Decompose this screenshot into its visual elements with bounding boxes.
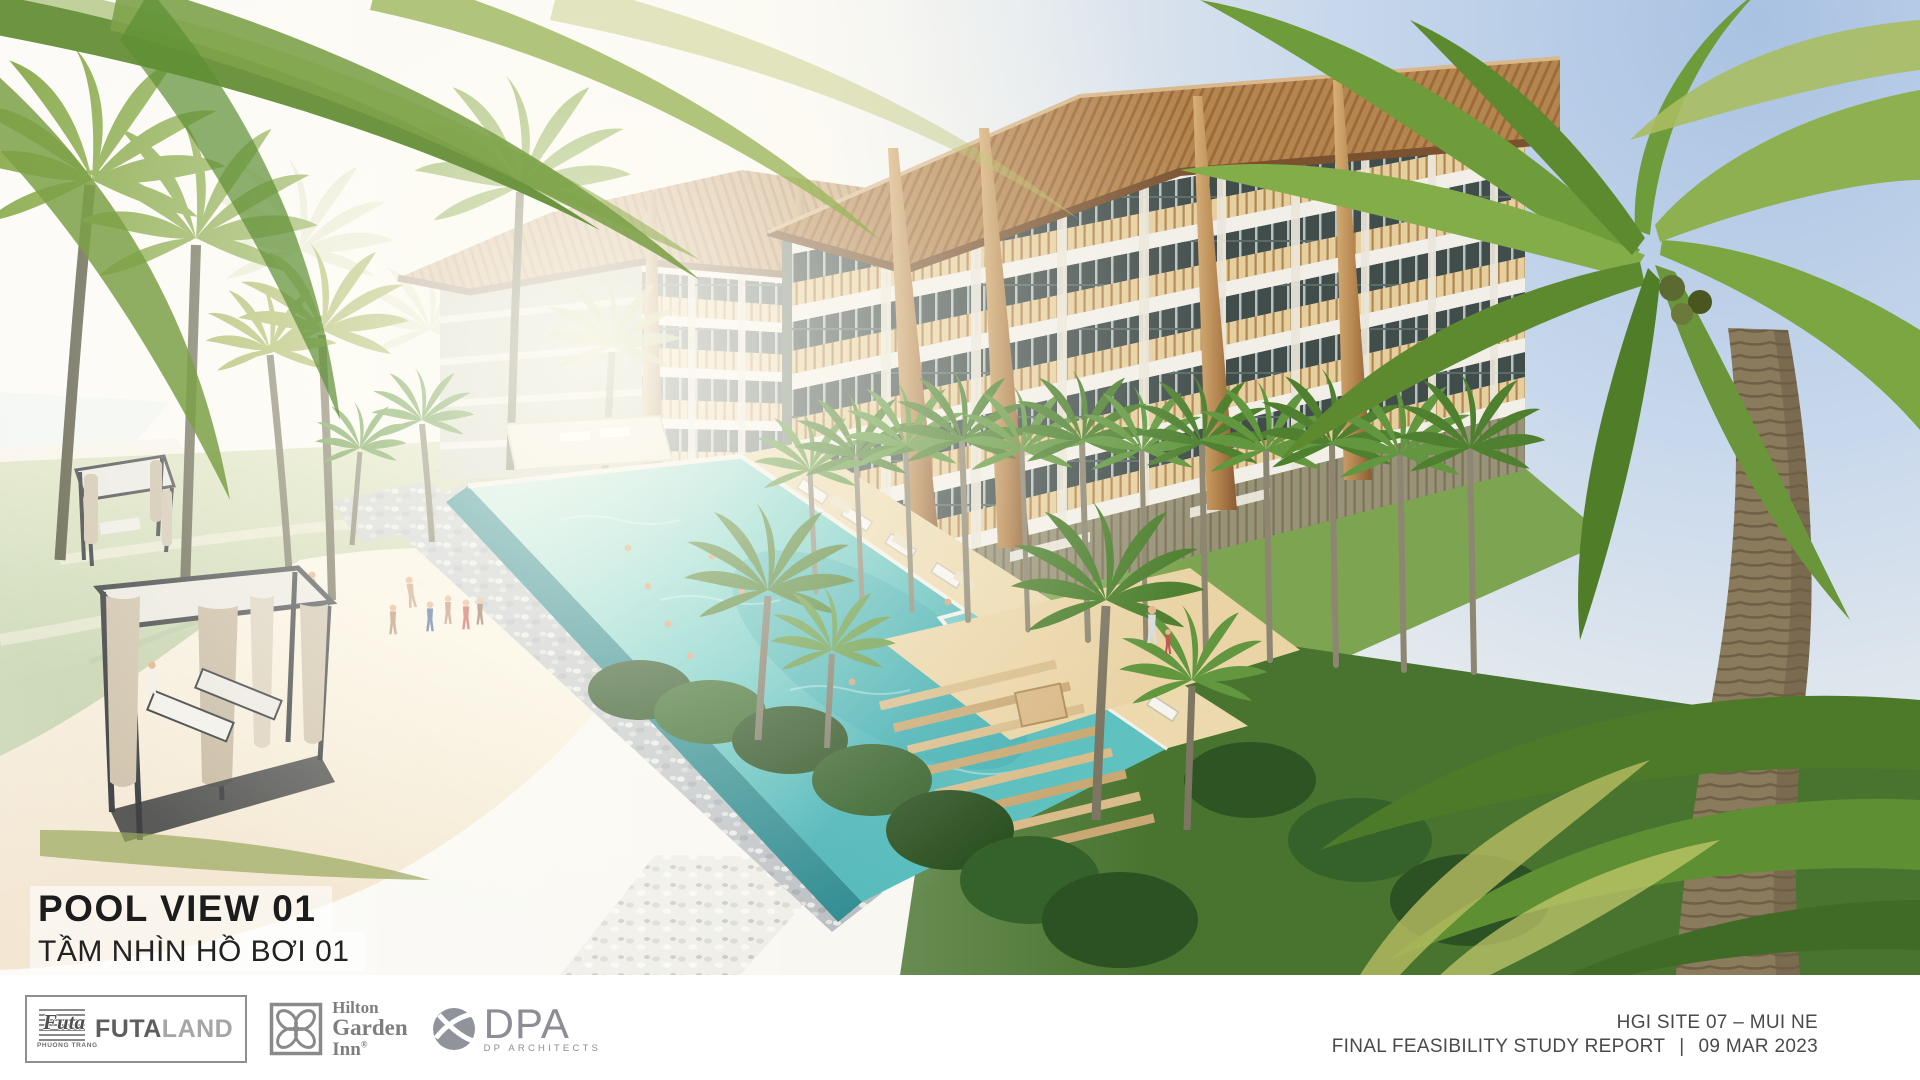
view-title: POOL VIEW 01	[30, 886, 332, 932]
dpa-globe-icon	[430, 1005, 478, 1053]
registered-mark: ®	[361, 1039, 368, 1049]
futa-emblem-subtext: PHUONG TRANG	[37, 1042, 98, 1049]
rendering-canvas	[0, 0, 1920, 975]
futaland-logo: Futa PHUONG TRANG FUTALAND	[25, 995, 247, 1063]
futa-emblem-script: Futa	[43, 1010, 85, 1035]
report-title-line: FINAL FEASIBILITY STUDY REPORT|09 MAR 20…	[1332, 1035, 1818, 1059]
hilton-wordmark: Hilton Garden Inn®	[332, 999, 407, 1059]
report-info: HGI SITE 07 – MUI NE FINAL FEASIBILITY S…	[1332, 1011, 1818, 1059]
pool-view-rendering	[0, 0, 1920, 975]
view-title-block: POOL VIEW 01 TẦM NHÌN HỒ BƠI 01	[30, 886, 365, 971]
futaland-wordmark: FUTALAND	[95, 1015, 233, 1044]
futa-emblem-icon: Futa PHUONG TRANG	[39, 1009, 85, 1049]
report-date: 09 MAR 2023	[1699, 1036, 1818, 1057]
dpa-logo: DPA DP ARCHITECTS	[430, 1005, 601, 1053]
slide-page: POOL VIEW 01 TẦM NHÌN HỒ BƠI 01 Futa PHU…	[0, 0, 1920, 1080]
separator-bar: |	[1679, 1035, 1684, 1059]
site-label: HGI SITE 07 – MUI NE	[1332, 1011, 1818, 1035]
hilton-flower-icon	[269, 1002, 323, 1056]
partner-logos: Futa PHUONG TRANG FUTALAND	[25, 995, 601, 1063]
hilton-garden-inn-logo: Hilton Garden Inn®	[269, 999, 407, 1059]
dpa-wordmark: DPA DP ARCHITECTS	[484, 1005, 601, 1053]
slide-footer: Futa PHUONG TRANG FUTALAND	[0, 975, 1920, 1080]
view-subtitle: TẦM NHÌN HỒ BƠI 01	[30, 932, 365, 971]
